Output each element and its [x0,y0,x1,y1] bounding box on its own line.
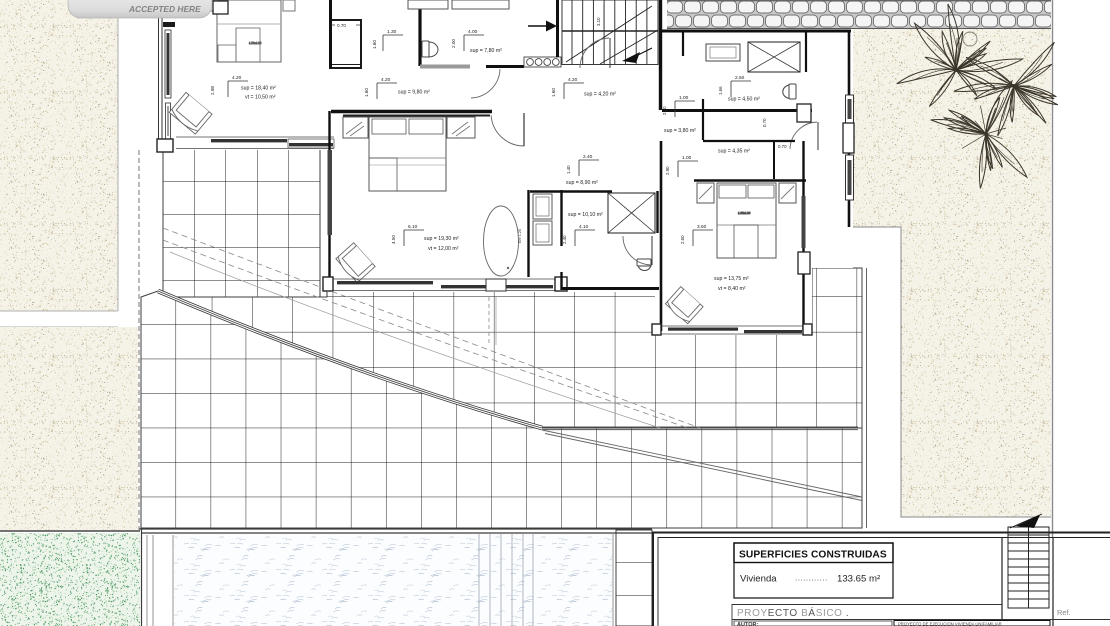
svg-text:2.90: 2.90 [665,166,670,175]
svg-text:4.00: 4.00 [468,29,478,35]
svg-text:1.60: 1.60 [364,88,369,97]
svg-text:sup = 9,80 m²: sup = 9,80 m² [398,90,430,96]
svg-text:1.60: 1.60 [372,40,377,49]
svg-text:Em 1.25: Em 1.25 [518,229,522,243]
svg-text:AUTOR:: AUTOR: [737,622,758,626]
svg-text:1.60: 1.60 [551,88,556,97]
svg-text:2.60: 2.60 [680,235,685,244]
svg-text:0.70: 0.70 [778,144,787,149]
svg-text:1.40: 1.40 [566,165,571,174]
svg-text:4.10: 4.10 [579,224,589,230]
svg-text:3.10: 3.10 [596,17,601,26]
svg-text:sup = 13,75 m²: sup = 13,75 m² [714,276,749,282]
svg-text:1.00: 1.00 [679,95,689,101]
svg-text:ACCEPTED HERE: ACCEPTED HERE [128,4,201,14]
svg-text:6.10: 6.10 [408,224,418,230]
svg-text:sup = 19,30 m²: sup = 19,30 m² [424,236,459,242]
svg-text:4.20: 4.20 [568,77,578,83]
svg-text:sup = 10,10 m²: sup = 10,10 m² [568,212,603,218]
svg-text:vt = 8,40 m²: vt = 8,40 m² [718,286,746,292]
svg-text:vt = 10,50 m²: vt = 10,50 m² [245,95,276,101]
svg-text:3.60: 3.60 [697,224,707,230]
svg-text:1.30: 1.30 [387,29,397,35]
svg-text:2.98: 2.98 [210,86,215,95]
svg-text:sup = 4,50 m²: sup = 4,50 m² [728,97,760,103]
svg-text:1.35x1.90: 1.35x1.90 [738,211,751,215]
svg-text:0.70: 0.70 [337,23,346,28]
svg-text:2.40: 2.40 [562,235,567,244]
svg-text:sup = 4,35 m²: sup = 4,35 m² [718,149,750,155]
svg-text:PROYECTO DE EJECUCION VIVIE: PROYECTO DE EJECUCION VIVIENDA UNIFAMILI… [898,622,1002,626]
svg-text:sup = 8,90 m²: sup = 8,90 m² [566,180,598,186]
svg-text:sup = 3,80 m²: sup = 3,80 m² [664,128,696,134]
svg-text:Vivienda: Vivienda [740,574,777,585]
svg-text:2.50: 2.50 [735,75,745,81]
svg-text:133.65 m²: 133.65 m² [837,574,881,585]
svg-text:sup = 18,40 m²: sup = 18,40 m² [241,86,276,92]
svg-text:4.20: 4.20 [232,75,242,81]
svg-text:vt = 12,00 m²: vt = 12,00 m² [428,246,459,252]
svg-text:sup = 4,20 m²: sup = 4,20 m² [584,92,616,98]
svg-text:2.50: 2.50 [662,106,667,115]
svg-text:sup = 7,80 m²: sup = 7,80 m² [470,48,502,54]
svg-text:............: ............ [795,574,828,583]
svg-text:4.50: 4.50 [391,235,396,244]
svg-text:1.66: 1.66 [718,86,723,95]
svg-text:1.50x1.90: 1.50x1.90 [249,41,262,45]
svg-text:0.70: 0.70 [762,118,767,127]
svg-text:2.00: 2.00 [451,39,456,48]
svg-text:2.40: 2.40 [583,154,593,160]
svg-text:PROYECTO BÁSICO .: PROYECTO BÁSICO . [737,606,849,619]
svg-text:SUPERFICIES CONSTRUIDAS: SUPERFICIES CONSTRUIDAS [739,550,887,561]
svg-text:1.00: 1.00 [682,155,692,161]
svg-text:4.20: 4.20 [381,77,391,83]
svg-text:Ref.: Ref. [1057,608,1071,617]
